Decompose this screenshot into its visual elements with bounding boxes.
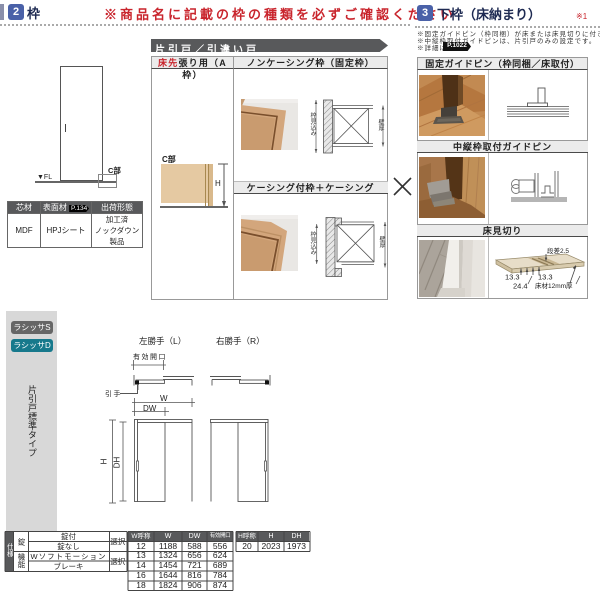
svg-text:24.4: 24.4: [513, 282, 528, 291]
svg-text:段差2.5: 段差2.5: [547, 246, 569, 255]
svg-text:床材12mm厚: 床材12mm厚: [535, 281, 573, 290]
svg-text:13.3: 13.3: [505, 273, 520, 282]
svg-text:13.3: 13.3: [538, 273, 553, 282]
